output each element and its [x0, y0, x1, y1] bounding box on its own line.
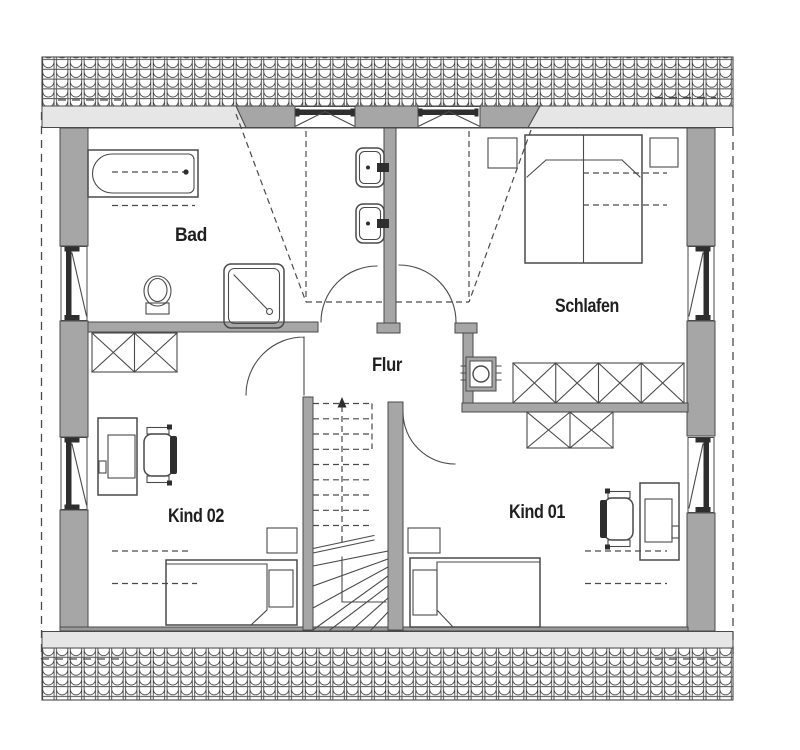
room-label-schlafen: Schlafen: [555, 296, 619, 317]
office-chair-kind02: [144, 425, 177, 486]
dormer-window-2: [418, 107, 480, 128]
room-flur: Flur: [372, 355, 403, 376]
desk-kind02: [98, 418, 137, 495]
door-arc-kind01: [403, 412, 455, 464]
washbasin-1: [356, 148, 389, 187]
floor-plan-page: Bad Schlafen Flur: [0, 0, 800, 750]
wardrobe-kind02: [92, 333, 177, 372]
desk-kind01: [640, 483, 679, 560]
office-chair-kind01: [600, 489, 633, 550]
doors: [246, 265, 456, 464]
roof-band-bottom: [42, 648, 733, 700]
wardrobe-kind01: [527, 412, 613, 448]
double-bed: [525, 135, 642, 263]
eaves-band-top-right: [528, 106, 733, 128]
chimney: [461, 357, 501, 391]
wall-schlafen-kind01: [462, 403, 688, 412]
staircase: [313, 397, 388, 630]
room-label-bad: Bad: [175, 225, 207, 246]
shower: [224, 264, 284, 328]
wall-schlafen-jamb: [455, 323, 477, 333]
wall-stairs-left: [303, 397, 313, 630]
room-label-kind01: Kind 01: [509, 502, 566, 523]
wall-stairs-right: [388, 402, 403, 630]
door-arc-bad: [321, 266, 377, 322]
bed-kind02: [166, 560, 297, 625]
bed-kind01: [410, 558, 540, 627]
exterior-wall-left: [60, 128, 88, 631]
room-kind01: Kind 01: [408, 412, 679, 627]
washbasin-2: [356, 204, 389, 243]
nightstand-right: [650, 138, 678, 167]
window-kind01: [688, 438, 714, 513]
roof-band-top: [42, 57, 733, 107]
stairs-winder-treads: [313, 536, 388, 631]
nightstand-kind02: [267, 528, 297, 553]
room-bad: Bad: [88, 148, 389, 328]
bathtub: [88, 150, 198, 197]
door-arc-schlafen: [399, 265, 456, 322]
toilet: [144, 276, 171, 314]
nightstand-left: [488, 138, 517, 168]
door-arc-kind02: [246, 337, 304, 395]
eaves-band-bottom: [42, 632, 733, 649]
eaves-band-top-left: [42, 106, 246, 128]
room-label-flur: Flur: [372, 355, 403, 376]
nightstand-kind01: [408, 528, 440, 553]
room-schlafen: Schlafen: [488, 135, 684, 403]
window-schlafen: [688, 247, 714, 321]
window-bad: [61, 247, 87, 321]
floor-plan-drawing: Bad Schlafen Flur: [0, 0, 800, 750]
dormer-wall: [236, 106, 540, 128]
window-kind02: [61, 438, 87, 510]
room-kind02: Kind 02: [92, 333, 297, 625]
dormer-window-1: [295, 107, 355, 128]
wardrobe-schlafen: [513, 363, 684, 403]
wall-center-foot: [377, 323, 400, 333]
room-label-kind02: Kind 02: [168, 506, 224, 527]
exterior-wall-right: [687, 128, 715, 631]
